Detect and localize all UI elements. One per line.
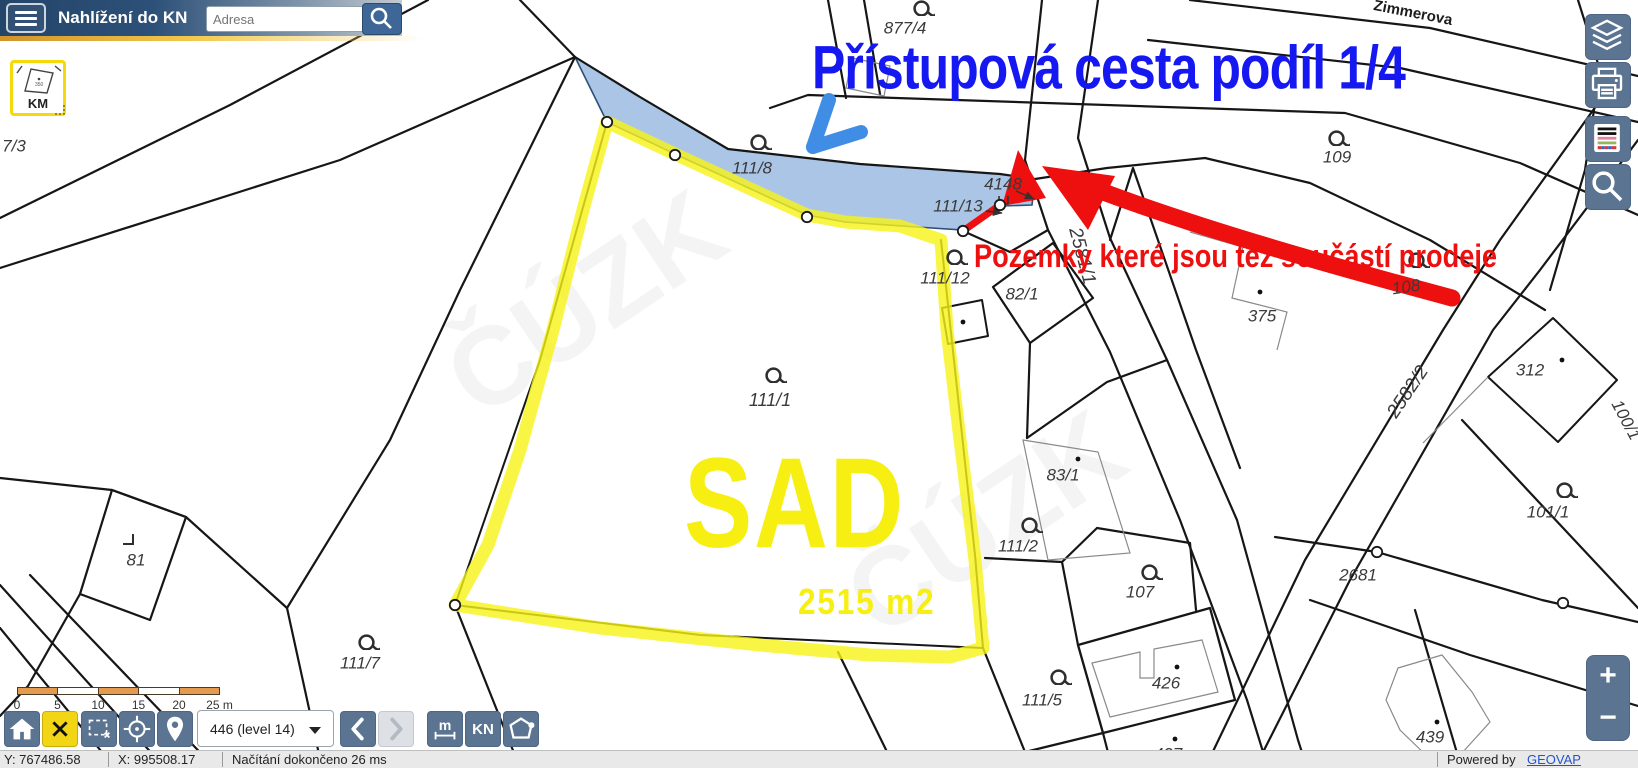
corner-symbol: [123, 534, 133, 544]
level-select-value: 446 (level 14): [210, 721, 295, 737]
close-icon: [43, 712, 77, 746]
vertex-circle: [802, 212, 812, 222]
map-viewport[interactable]: ČÚZK ČÚZK: [0, 0, 1638, 768]
header-accent-line: [0, 36, 424, 41]
status-x-coordinate: X: 995508.17: [118, 752, 195, 767]
locate-button[interactable]: [119, 711, 155, 747]
layers-button[interactable]: [1585, 14, 1631, 60]
level-select-dropdown[interactable]: 446 (level 14): [197, 710, 334, 747]
vertex-circle: [602, 117, 612, 127]
vertex-circle: [958, 226, 968, 236]
app-title: Nahlížení do KN: [58, 8, 187, 28]
status-bar: Y: 767486.58 X: 995508.17 Načítání dokon…: [0, 750, 1638, 768]
km-resize-handle[interactable]: [55, 105, 65, 115]
building-dot: [1175, 665, 1180, 670]
chevron-right-icon: [379, 712, 413, 746]
polygon-icon: [504, 712, 538, 746]
building-dot: [1560, 358, 1565, 363]
scale-tick-label: 10: [91, 698, 104, 712]
layers-icon: [1586, 15, 1628, 57]
menu-button[interactable]: [6, 3, 46, 33]
annotation-sale-parcels: Pozemky které jsou též součástí prodeje: [974, 240, 1497, 272]
building-dot: [1076, 457, 1081, 462]
polygon-tool-button[interactable]: [503, 711, 539, 747]
forward-button[interactable]: [378, 711, 414, 747]
scale-bar: [17, 687, 220, 695]
red-arrow: [1042, 166, 1452, 298]
vertex-circle: [1558, 598, 1568, 608]
legend-button[interactable]: [1585, 116, 1631, 162]
kn-label: KN: [466, 712, 500, 746]
chevron-down-icon: [309, 727, 321, 734]
address-search-input[interactable]: [206, 6, 364, 32]
search-icon: [363, 4, 399, 32]
zoom-in-button[interactable]: +: [1587, 656, 1629, 698]
vertex-circle: [670, 150, 680, 160]
annotation-sad: SAD: [684, 440, 905, 568]
location-pin-icon: [158, 712, 192, 746]
chevron-left-icon: [341, 712, 375, 746]
home-icon: [5, 712, 39, 746]
marquee-select-icon: [82, 712, 116, 746]
vertex-circle: [450, 600, 460, 610]
svg-text:m: m: [439, 718, 452, 734]
km-map-sketch-icon: 350: [13, 63, 63, 97]
scale-tick-label: 20: [172, 698, 185, 712]
legend-icon: [1586, 117, 1628, 159]
measure-button[interactable]: m: [427, 711, 463, 747]
close-selection-button[interactable]: [42, 711, 78, 747]
building-dot: [1435, 720, 1440, 725]
location-pin-button[interactable]: [157, 711, 193, 747]
geovap-link[interactable]: GEOVAP: [1527, 752, 1581, 767]
locate-icon: [120, 712, 154, 746]
home-button[interactable]: [4, 711, 40, 747]
annotation-access-road: Přístupová cesta podíl 1/4: [812, 38, 1405, 99]
building-dot: [961, 320, 966, 325]
search-button[interactable]: [362, 3, 402, 35]
status-y-coordinate: Y: 767486.58: [4, 752, 81, 767]
back-button[interactable]: [340, 711, 376, 747]
print-icon: [1586, 63, 1628, 105]
map-search-button[interactable]: [1585, 164, 1631, 210]
annotation-area: 2515 m2: [798, 584, 935, 620]
scale-tick-label: 0: [14, 698, 21, 712]
measure-icon: m: [428, 712, 462, 746]
zoom-out-button[interactable]: −: [1587, 698, 1629, 740]
km-layer-button[interactable]: 350 KM: [10, 60, 66, 116]
magnifier-icon: [1586, 165, 1628, 207]
svg-text:350: 350: [35, 82, 44, 88]
cadastral-map[interactable]: ČÚZK ČÚZK: [0, 0, 1638, 768]
zoom-control: + −: [1586, 655, 1630, 741]
scale-tick-label: 15: [132, 698, 145, 712]
vertex-circle: [1372, 547, 1382, 557]
marquee-select-button[interactable]: [81, 711, 117, 747]
status-message: Načítání dokončeno 26 ms: [232, 752, 387, 767]
scale-tick-label: 5: [54, 698, 61, 712]
building-dot: [1173, 737, 1178, 742]
building-dot: [1258, 290, 1263, 295]
print-button[interactable]: [1585, 62, 1631, 108]
vertex-circle: [995, 200, 1005, 210]
powered-by-label: Powered by: [1447, 752, 1516, 767]
kn-button[interactable]: KN: [465, 711, 501, 747]
blue-arrow: [813, 100, 861, 147]
